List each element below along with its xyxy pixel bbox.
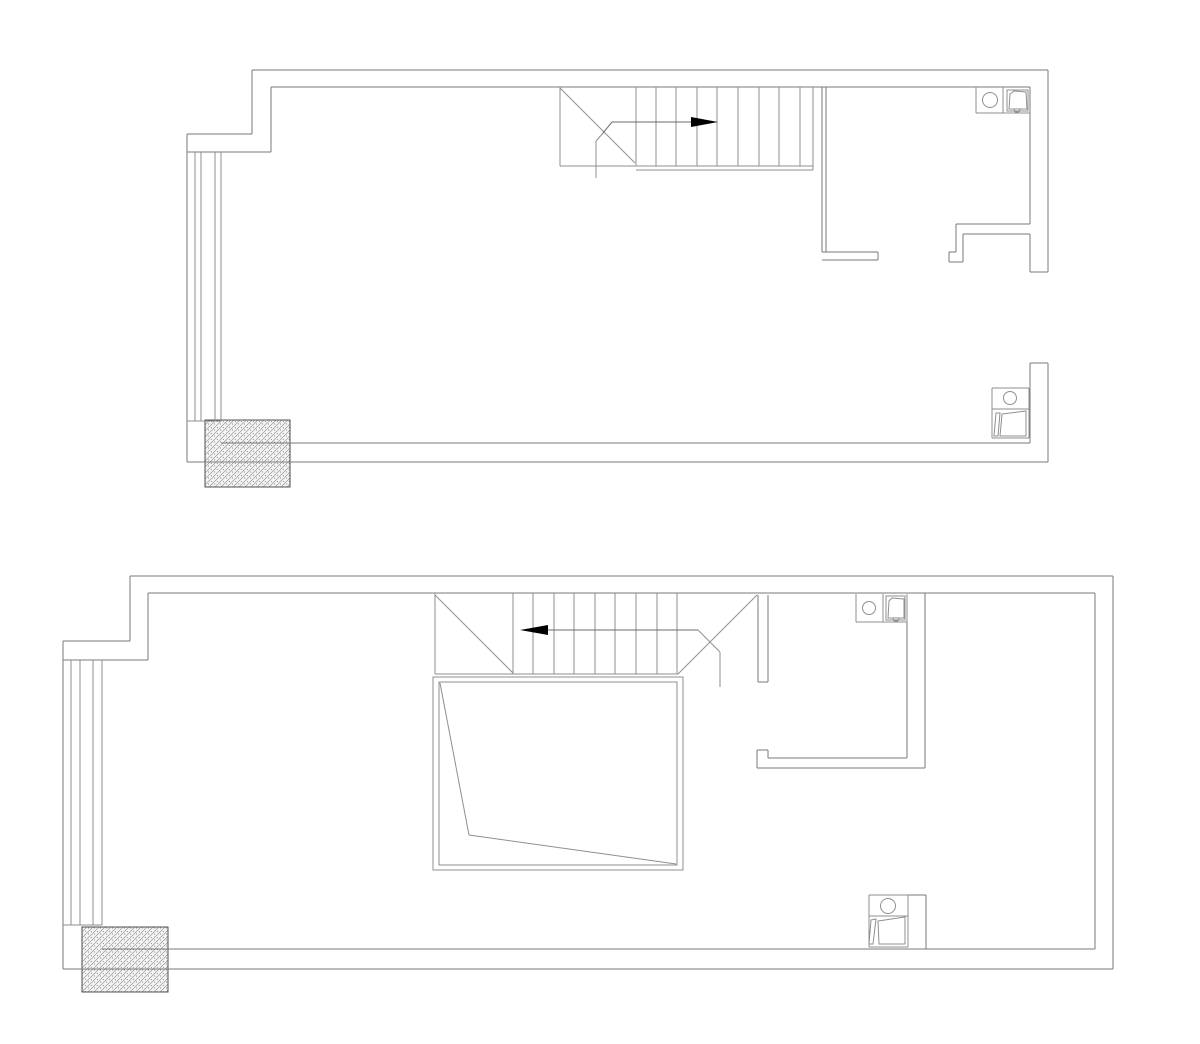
sink-unit-circle	[983, 93, 998, 108]
left-window	[187, 152, 221, 421]
floor-void-opening	[433, 677, 683, 870]
floor-void-opening-outline	[439, 682, 677, 865]
sink-unit-outline	[888, 598, 904, 618]
interior-walls	[757, 593, 926, 949]
stair-direction-arrow-line	[603, 122, 612, 133]
sink-unit-circle	[863, 602, 876, 615]
staircase-line	[435, 595, 513, 673]
toilet-circle	[1004, 392, 1017, 405]
sink-unit-outline	[1007, 90, 1028, 111]
floor-plan-sheet	[0, 0, 1200, 1044]
toilet-outline	[878, 917, 905, 944]
toilet-outline	[869, 919, 876, 944]
column-hatch	[82, 927, 168, 992]
toilet	[992, 388, 1029, 438]
staircase-line	[678, 595, 757, 674]
staircase-line	[560, 88, 635, 163]
stair-direction-arrow	[603, 117, 718, 133]
structural-column	[82, 927, 168, 992]
floor-void-opening-outline	[433, 677, 683, 870]
stair-direction-arrow	[520, 625, 698, 635]
toilet-outline	[994, 413, 1000, 436]
sink-unit-outline	[1009, 91, 1027, 109]
toilet	[869, 895, 908, 947]
arrowhead	[691, 117, 718, 127]
lower-floor-plan	[63, 576, 1113, 992]
staircase	[560, 87, 813, 178]
upper-floor-plan	[187, 70, 1048, 487]
staircase	[435, 593, 757, 687]
toilet-outline	[1000, 411, 1026, 436]
staircase-line	[698, 630, 720, 652]
exterior-walls	[63, 576, 1113, 969]
column-hatch	[205, 420, 290, 487]
left-window	[63, 660, 102, 925]
toilet-circle	[881, 899, 896, 914]
sink-unit	[856, 594, 907, 622]
arrowhead	[520, 625, 548, 635]
sink-unit	[976, 87, 1030, 113]
structural-column	[205, 420, 290, 487]
floor-void-opening-line	[440, 683, 469, 835]
floor-plan-canvas	[0, 0, 1200, 1044]
exterior-walls	[187, 70, 1048, 462]
floor-void-opening-line	[469, 835, 676, 864]
staircase-line	[596, 132, 604, 141]
